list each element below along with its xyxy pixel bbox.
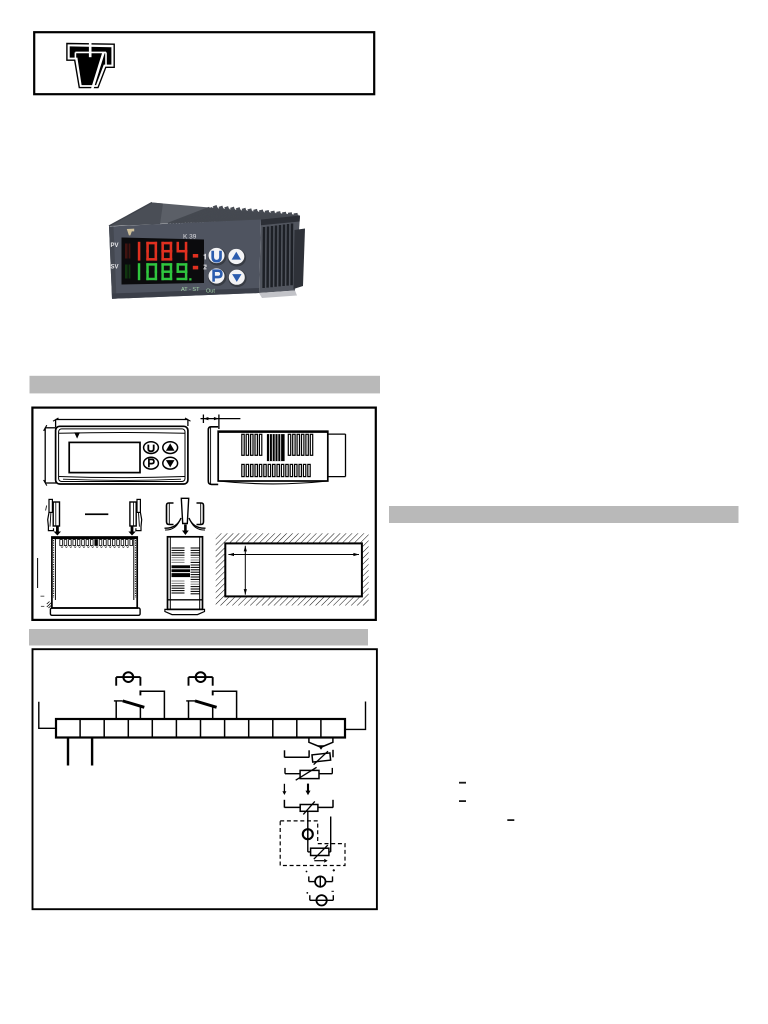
- svg-text:PV: PV: [111, 243, 119, 249]
- svg-text:SV: SV: [111, 265, 119, 271]
- svg-text:AT - ST: AT - ST: [181, 287, 200, 293]
- svg-text:Out: Out: [206, 289, 215, 295]
- svg-text:K 39: K 39: [183, 234, 197, 241]
